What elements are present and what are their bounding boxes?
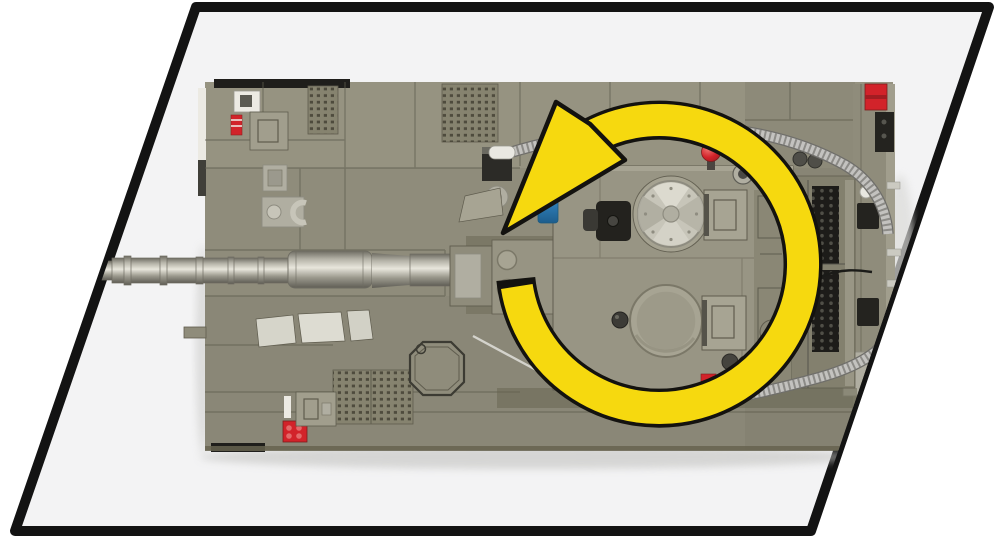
headlight-block <box>234 91 260 112</box>
rear-black-bracket <box>875 112 894 152</box>
vent-grille-mid <box>442 84 498 142</box>
cable-end-connector <box>489 146 515 159</box>
vent-grille-bottom <box>333 370 413 424</box>
hinge-block <box>263 165 287 191</box>
octagon-hatch <box>410 342 464 395</box>
left-side-tab <box>184 327 206 338</box>
tank-illustration <box>0 0 998 539</box>
tail-light <box>865 84 887 110</box>
loader-hatch-hinge <box>702 296 746 350</box>
cradle-insert <box>455 254 481 298</box>
mantlet-stud-1 <box>498 251 517 270</box>
left-edge-dark-strip <box>198 160 206 196</box>
white-strip-part <box>284 396 291 418</box>
clip-bracket <box>296 392 336 426</box>
framed-scene <box>97 79 916 469</box>
left-edge-white-strip <box>198 88 206 162</box>
skid-plate-1 <box>256 315 296 347</box>
vent-grille-front <box>308 86 338 134</box>
skid-plate-3 <box>347 310 373 341</box>
commander-hatch <box>633 176 709 252</box>
skid-plate-2 <box>298 312 345 343</box>
product-photo-canvas <box>0 0 998 539</box>
rear-black-box-2 <box>857 298 879 326</box>
hull-bottom-edge <box>205 446 893 451</box>
tow-clevis <box>262 197 306 227</box>
fume-extractor <box>288 251 372 288</box>
black-stud <box>612 312 628 328</box>
red-marker-light <box>231 115 242 135</box>
barrel-taper <box>372 253 410 288</box>
front-bracket <box>250 112 288 150</box>
loader-hatch <box>630 285 702 357</box>
commander-hatch-hinge <box>704 190 747 240</box>
